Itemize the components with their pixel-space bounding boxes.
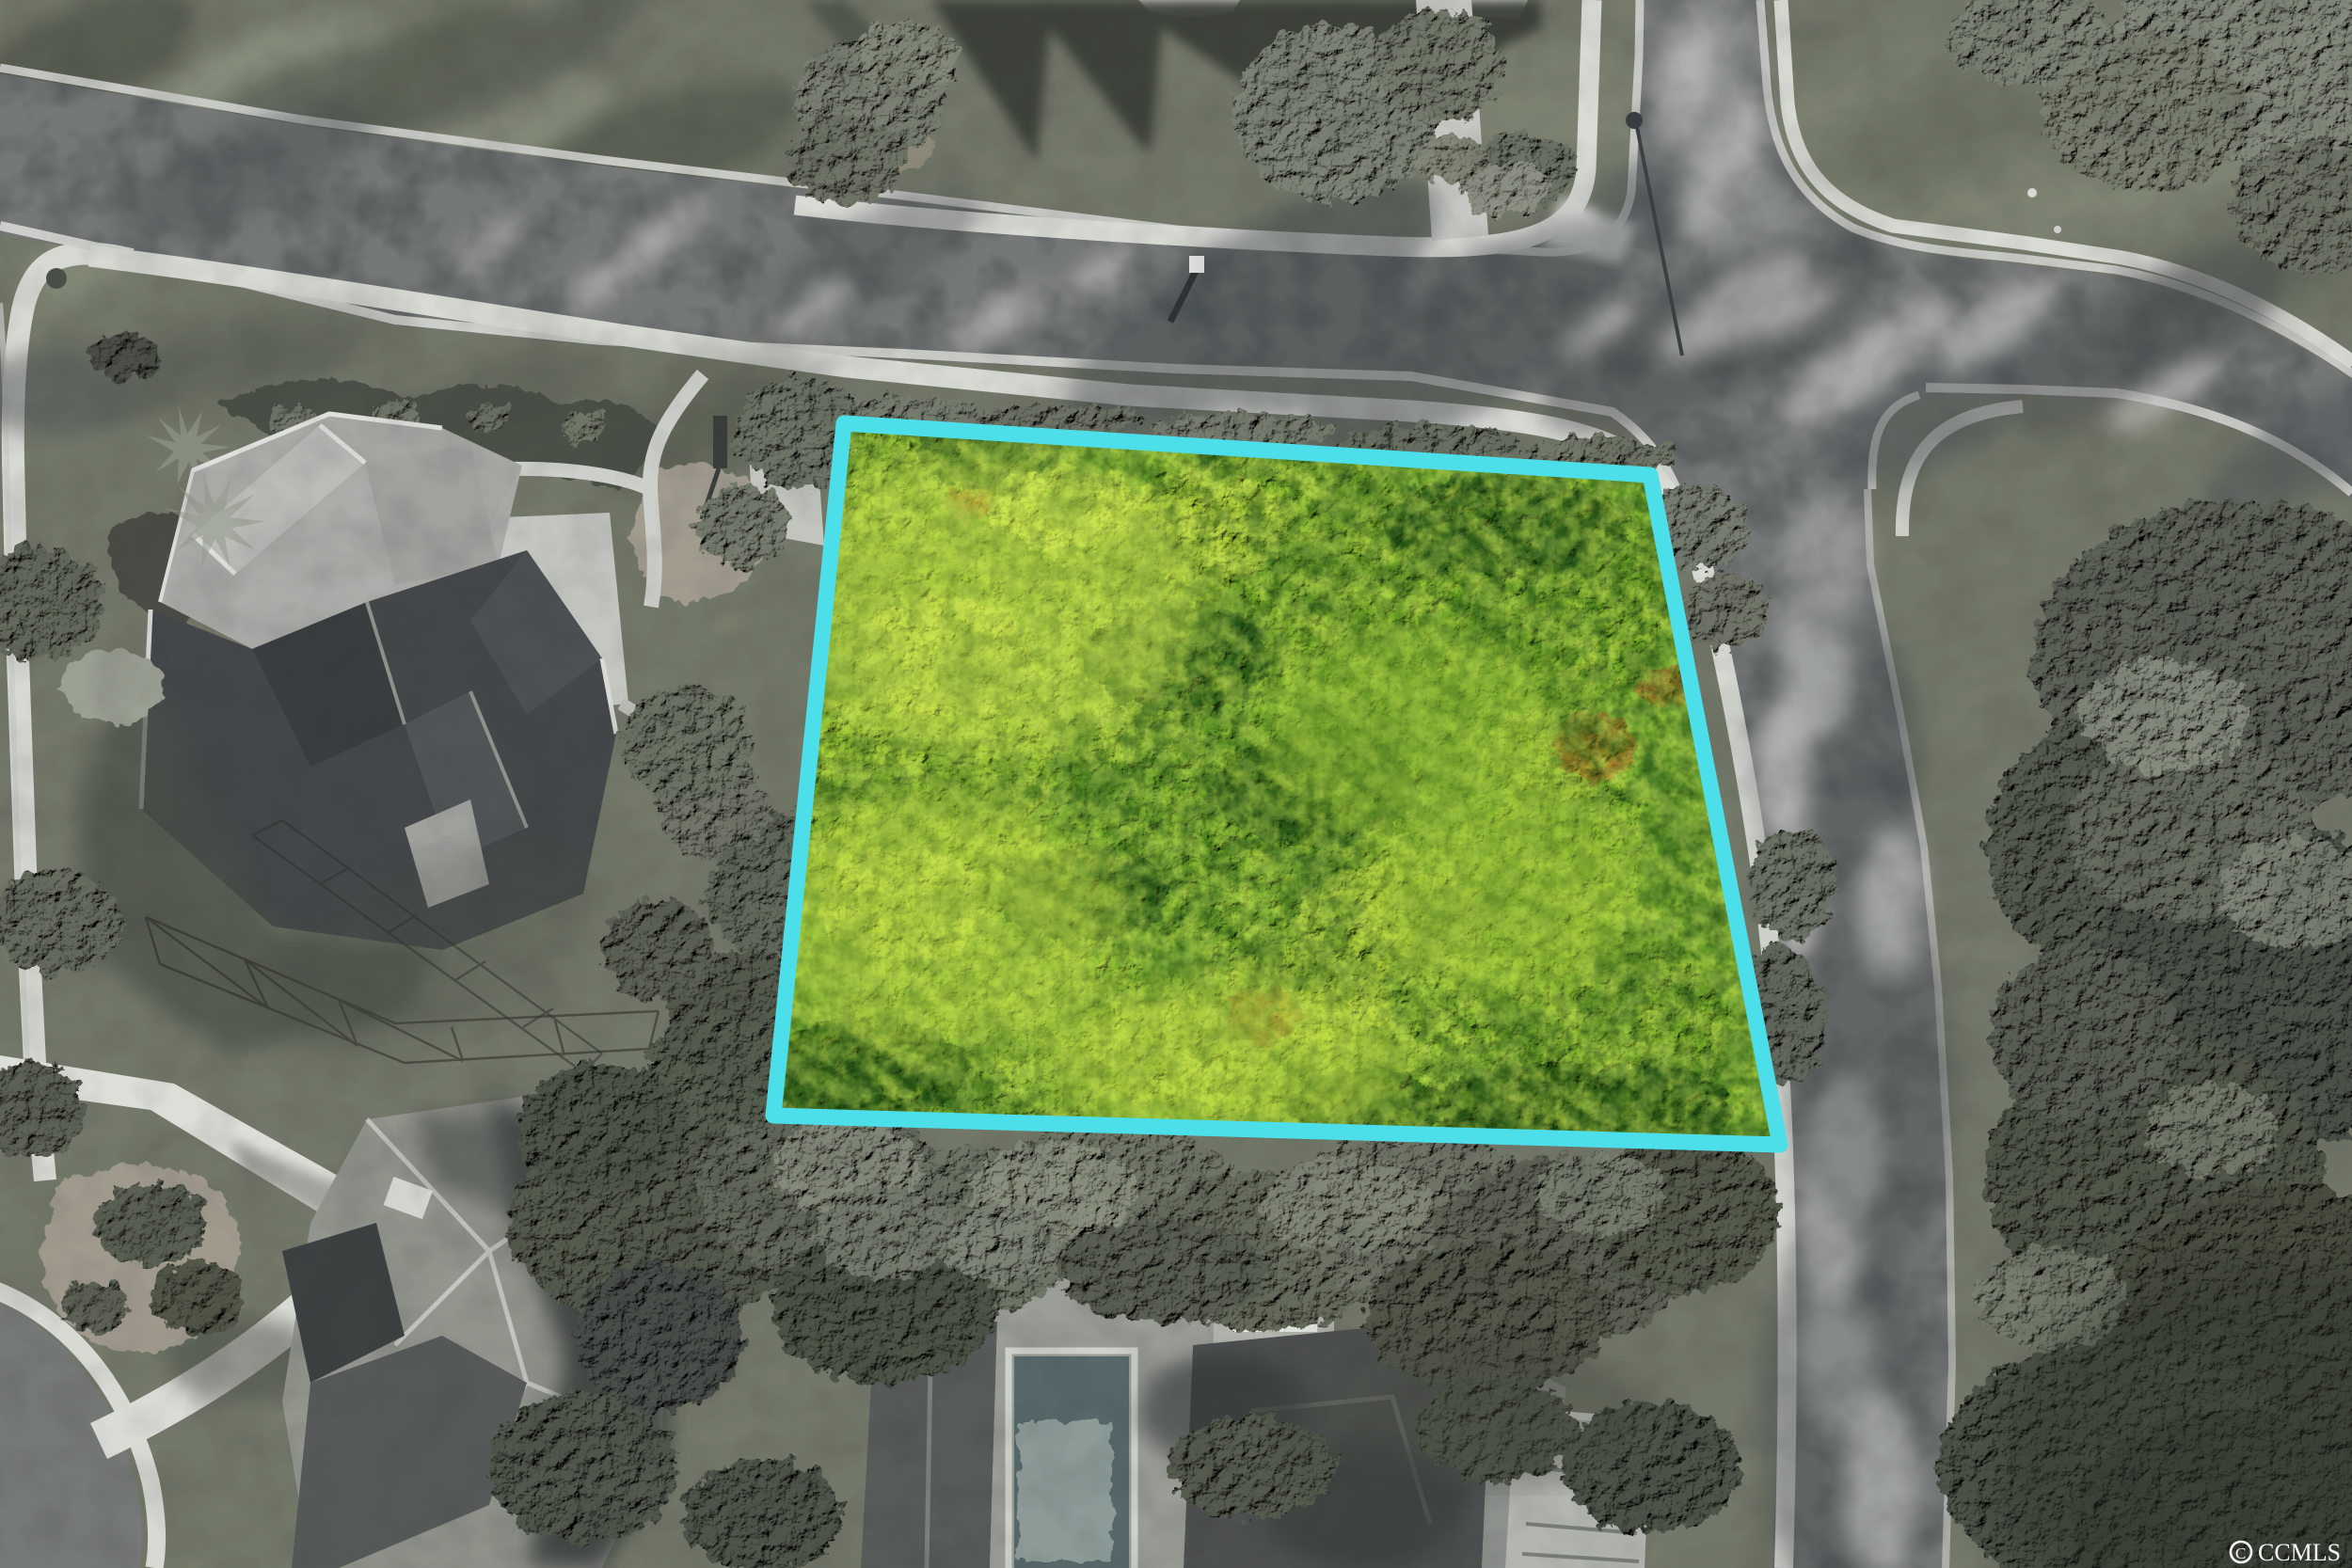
svg-text:C: C [2235,1544,2246,1562]
svg-text:CCMLS: CCMLS [2258,1539,2341,1566]
